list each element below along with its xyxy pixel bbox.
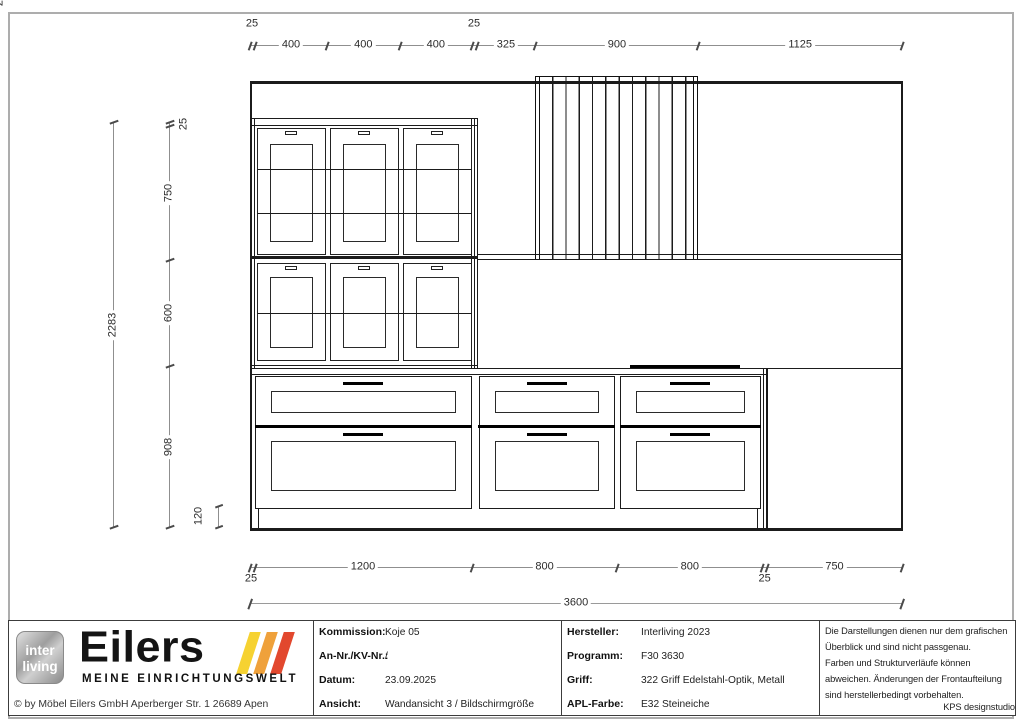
logo-slashes [243, 632, 294, 674]
info-label: Programm: [567, 651, 623, 662]
drawer-handle [527, 433, 567, 436]
drawer-front-panel [636, 391, 745, 413]
drawer-front-panel [271, 441, 456, 491]
floor-line [250, 528, 903, 531]
shelf-line [257, 213, 473, 214]
plinth-line-left [258, 509, 259, 529]
dim-label: 25 [0, 0, 6, 9]
door-handle [431, 131, 443, 135]
dim-label: 1125 [785, 40, 815, 51]
drawer-handle [527, 382, 567, 385]
door-handle [358, 131, 370, 135]
info-label: Datum: [319, 675, 355, 686]
glass-door [330, 128, 400, 255]
info-label: APL-Farbe: [567, 699, 624, 710]
dim-label: 750 [822, 562, 846, 573]
dim-label: 2283 [108, 309, 119, 339]
info-label: Kommission: [319, 627, 386, 638]
dim-label: 800 [532, 562, 556, 573]
extractor-hood [535, 76, 698, 259]
drawer-handle [670, 382, 710, 385]
shelf-line [257, 169, 473, 170]
info-value: 23.09.2025 [385, 675, 436, 686]
unit-bottom-line [250, 365, 478, 366]
drawing-page: 25 400 400 400 25 325 900 1125 2283 25 2… [0, 0, 1024, 724]
glass-door [403, 128, 473, 255]
info-label: Hersteller: [567, 627, 619, 638]
glass-panel [343, 144, 387, 242]
dim-label: 325 [494, 40, 518, 51]
drawer-divider [478, 425, 615, 428]
dim-label: 25 [758, 574, 770, 585]
info-value: Interliving 2023 [641, 627, 710, 638]
crown-strip-line [250, 125, 478, 126]
hood-slats [539, 77, 695, 259]
dim-label: 750 [164, 181, 175, 205]
drawer-front-panel [271, 391, 456, 413]
badge-text-line2: living [17, 659, 63, 675]
title-block-divider [561, 621, 562, 715]
info-value: Wandansicht 3 / Bildschirmgröße [385, 699, 534, 710]
copyright-text: © by Möbel Eilers GmbH Aperberger Str. 1… [14, 699, 268, 710]
eilers-logo: Eilers [79, 625, 205, 669]
title-block-divider [819, 621, 820, 715]
glass-door [257, 128, 327, 255]
glass-panel [270, 144, 314, 242]
drawer-handle [670, 433, 710, 436]
info-label: Griff: [567, 675, 593, 686]
end-panel-line-b [766, 368, 768, 528]
row-divider-line [250, 256, 478, 259]
drawer-handle [343, 382, 383, 385]
info-value: 322 Griff Edelstahl-Optik, Metall [641, 675, 785, 686]
base-cabinet [620, 376, 761, 509]
glass-panel [416, 144, 460, 242]
info-value: Koje 05 [385, 627, 420, 638]
disclaimer-line: abweichen. Änderungen der Frontaufteilun… [825, 674, 1015, 685]
cooktop [630, 365, 740, 368]
dim-label: 400 [424, 40, 448, 51]
wall-right-edge [901, 81, 904, 531]
drawer-divider [620, 425, 762, 428]
door-handle [431, 266, 443, 270]
dim-label: 1200 [348, 562, 378, 573]
info-value: E32 Steineiche [641, 699, 710, 710]
dim-label: 25 [246, 19, 258, 30]
dim-label: 25 [245, 574, 257, 585]
studio-credit: KPS designstudio [825, 702, 1015, 713]
interliving-logo-badge: inter living [16, 631, 64, 684]
dim-label: 25 [179, 115, 190, 133]
drawer-front-panel [495, 441, 599, 491]
dim-line-plinth [218, 506, 219, 527]
plinth-line-right [757, 509, 758, 529]
dim-label: 25 [468, 19, 480, 30]
badge-text-line1: inter [17, 643, 63, 659]
disclaimer-line: Die Darstellungen dienen nur dem grafisc… [825, 626, 1015, 637]
side-panel-line-left [254, 118, 255, 369]
page-border [8, 12, 1014, 719]
door-handle [358, 266, 370, 270]
dim-label: 400 [279, 40, 303, 51]
side-panel-line-right-b [474, 118, 475, 369]
base-cabinet [255, 376, 472, 509]
dim-label: 908 [164, 434, 175, 458]
wall-unit-level-line-2 [477, 259, 901, 260]
drawer-divider [255, 425, 473, 428]
door-handle [285, 131, 297, 135]
base-cabinet [479, 376, 615, 509]
shelf-line [257, 313, 473, 314]
dim-label: 600 [164, 301, 175, 325]
end-panel-line-a [763, 368, 764, 528]
drawer-front-panel [495, 391, 599, 413]
dim-label: 3600 [561, 598, 591, 609]
title-block-divider [313, 621, 314, 715]
dim-label: 120 [194, 504, 205, 528]
info-label: Ansicht: [319, 699, 361, 710]
disclaimer-line: Überblick und sind nicht passgenau. [825, 642, 1015, 653]
dim-label: 900 [605, 40, 629, 51]
drawer-front-panel [636, 441, 745, 491]
info-value: / [385, 651, 388, 662]
logo-tagline: MEINE EINRICHTUNGSWELT [82, 673, 298, 685]
drawer-handle [343, 433, 383, 436]
info-label: An-Nr./KV-Nr.: [319, 651, 388, 662]
title-block: inter living Eilers MEINE EINRICHTUNGSWE… [8, 620, 1016, 716]
info-value: F30 3630 [641, 651, 684, 662]
dim-label: 400 [351, 40, 375, 51]
disclaimer-line: sind herstellerbedingt vorbehalten. [825, 690, 1015, 701]
dim-label: 800 [678, 562, 702, 573]
disclaimer-line: Farben und Strukturverläufe können [825, 658, 1015, 669]
countertop-edge-line [250, 374, 767, 376]
door-handle [285, 266, 297, 270]
